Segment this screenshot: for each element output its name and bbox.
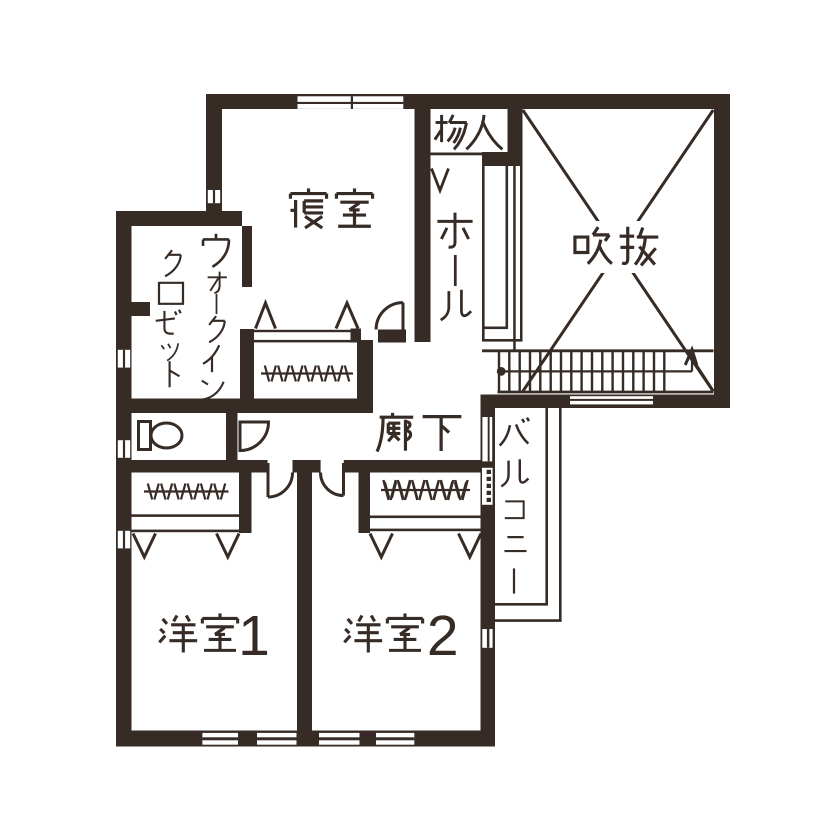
svg-text:2: 2	[427, 604, 459, 668]
svg-text:1: 1	[238, 604, 270, 668]
